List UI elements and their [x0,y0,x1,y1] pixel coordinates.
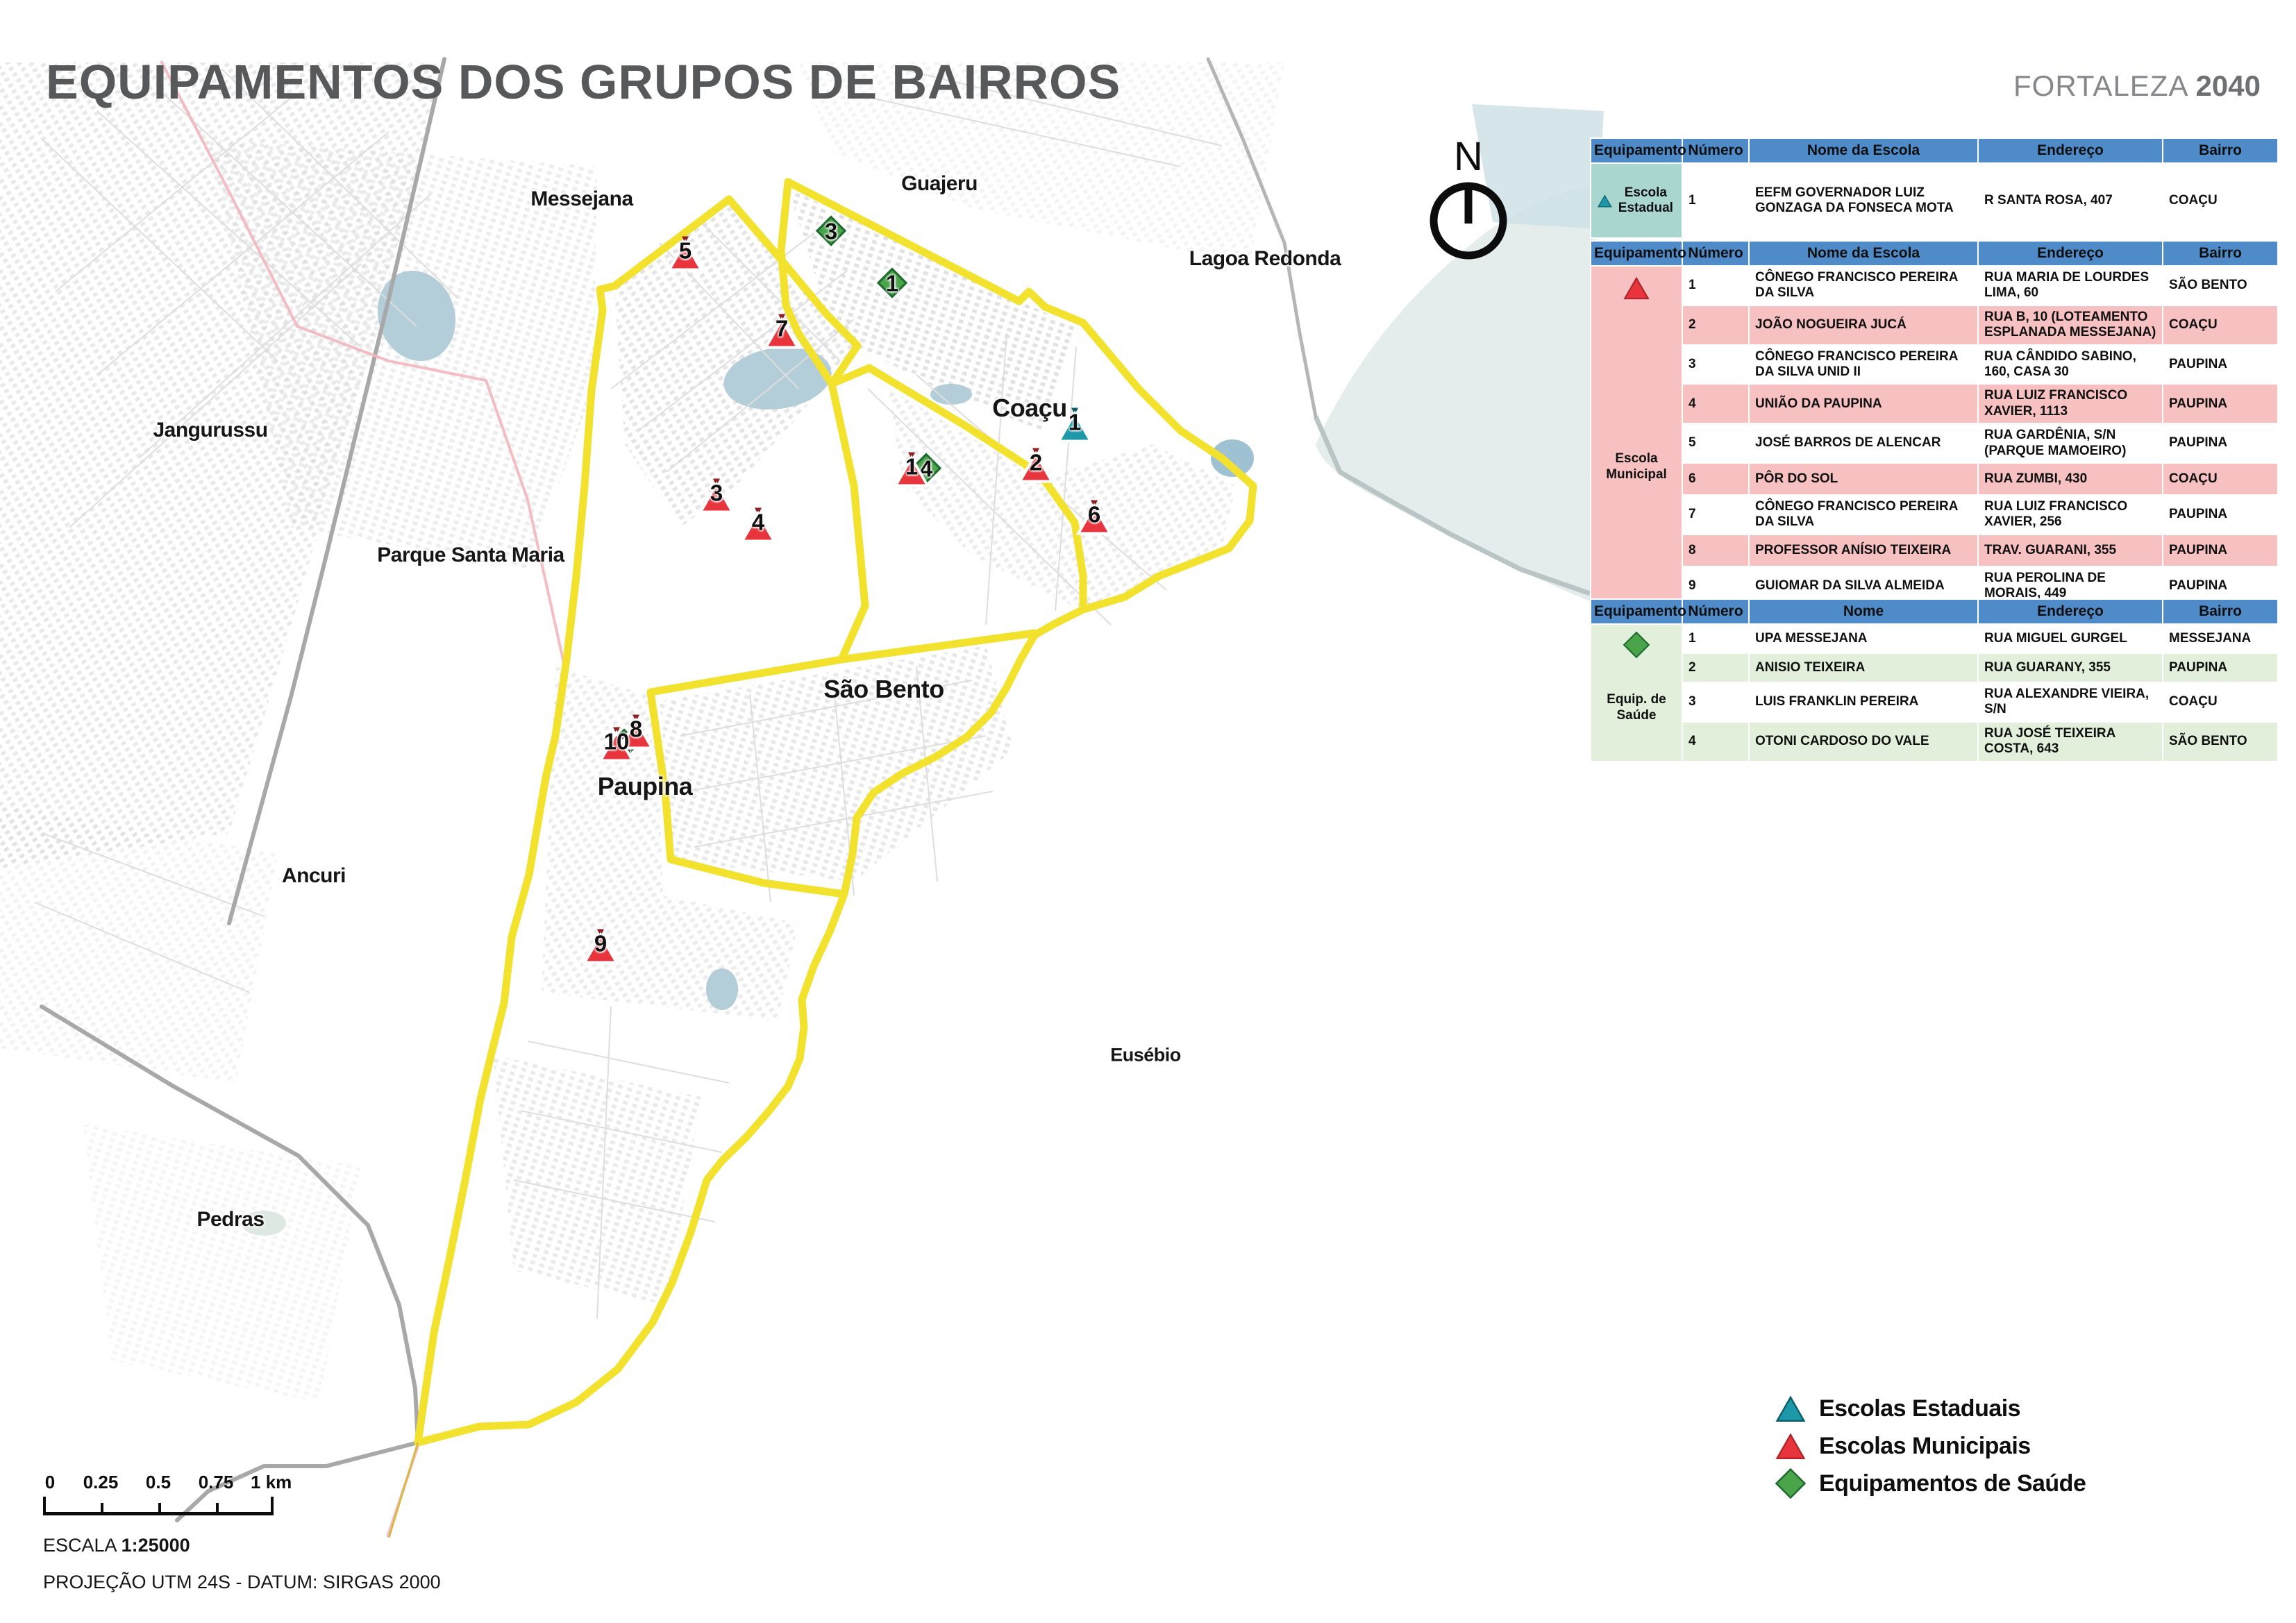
category-cell-saude: Equip. de Saúde [1591,624,1682,762]
saude-diamond-icon [1775,1468,1807,1499]
marker-estadual-1: 1 [1055,408,1094,447]
cell-nome: EEFM GOVERNADOR LUIZ GONZAGA DA FONSECA … [1749,163,1978,238]
table-row: 5 JOSÉ BARROS DE ALENCAR RUA GARDÊNIA, S… [1591,423,2278,463]
scale-tick-labels: 0 0.25 0.5 0.75 1 km [43,1472,274,1494]
saude-diamond-icon [1623,631,1650,659]
table-row: Escola Estadual 1 EEFM GOVERNADOR LUIZ G… [1591,163,2278,238]
cell-nome: UPA MESSEJANA [1749,624,1978,653]
col-equipamento: Equipamento [1591,241,1682,266]
region-label-lagoa-redonda: Lagoa Redonda [1189,247,1341,271]
marker-municipal-9: 9 [581,930,620,968]
region-label-messejana: Messejana [530,187,632,211]
map-poster: EQUIPAMENTOS DOS GRUPOS DE BAIRROS FORTA… [0,0,2296,1623]
legend-item-saude: Equipamentos de Saúde [1775,1465,2086,1502]
marker-municipal-6: 6 [1075,501,1114,539]
cell-endereco: RUA LUIZ FRANCISCO XAVIER, 1113 [1978,384,2163,423]
cell-nome: LUIS FRANKLIN PEREIRA [1749,682,1978,722]
cell-numero: 2 [1682,653,1749,682]
cell-nome: PROFESSOR ANÍSIO TEIXEIRA [1749,535,1978,566]
table-row: 6 PÔR DO SOL RUA ZUMBI, 430 COAÇU [1591,463,2278,495]
col-equipamento: Equipamento [1591,138,1682,163]
cell-numero: 1 [1682,624,1749,653]
col-nome: Nome da Escola [1749,138,1978,163]
col-bairro: Bairro [2163,138,2278,163]
scale-bar-line [43,1497,274,1515]
estadual-triangle-icon [1597,189,1613,212]
cell-bairro: PAUPINA [2163,423,2278,463]
marker-saude-1: 1 [873,264,912,303]
north-label: N [1429,139,1508,175]
legend-item-municipais: Escolas Municipais [1775,1427,2086,1465]
cell-endereco: RUA LUIZ FRANCISCO XAVIER, 256 [1978,495,2163,535]
cell-bairro: COAÇU [2163,682,2278,722]
table-row: Equip. de Saúde 1 UPA MESSEJANA RUA MIGU… [1591,624,2278,653]
municipal-triangle-icon [1775,1431,1807,1461]
cell-bairro: PAUPINA [2163,384,2278,423]
cell-nome: PÔR DO SOL [1749,463,1978,495]
table-header-row: Equipamento Número Nome da Escola Endere… [1591,241,2278,266]
cell-numero: 8 [1682,535,1749,566]
group-label-sao-bento: São Bento [823,675,944,704]
cell-endereco: RUA B, 10 (LOTEAMENTO ESPLANADA MESSEJAN… [1978,305,2163,345]
cell-endereco: RUA JOSÉ TEIXEIRA COSTA, 643 [1978,722,2163,762]
marker-municipal-5: 5 [666,237,705,276]
col-nome: Nome [1749,599,1978,624]
table-row: 2 JOÃO NOGUEIRA JUCÁ RUA B, 10 (LOTEAMEN… [1591,305,2278,345]
table-equip-saude: Equipamento Número Nome Endereço Bairro … [1590,598,2279,762]
cell-numero: 4 [1682,722,1749,762]
cell-numero: 1 [1682,163,1749,238]
col-bairro: Bairro [2163,599,2278,624]
cell-bairro: PAUPINA [2163,495,2278,535]
table-escola-estadual: Equipamento Número Nome da Escola Endere… [1590,137,2279,239]
estadual-triangle-icon [1775,1394,1807,1423]
table-row: 2 ANISIO TEIXEIRA RUA GUARANY, 355 PAUPI… [1591,653,2278,682]
col-bairro: Bairro [2163,241,2278,266]
cell-numero: 2 [1682,305,1749,345]
scale-bar: 0 0.25 0.5 0.75 1 km ESCALA 1:25000 PROJ… [43,1472,441,1593]
category-cell-municipal: Escola Municipal [1591,266,1682,638]
cell-endereco: RUA GUARANY, 355 [1978,653,2163,682]
col-endereco: Endereço [1978,599,2163,624]
projection-text: PROJEÇÃO UTM 24S - DATUM: SIRGAS 2000 [43,1572,441,1593]
region-label-jangurussu: Jangurussu [153,419,267,442]
table-row: 7 CÔNEGO FRANCISCO PEREIRA DA SILVA RUA … [1591,495,2278,535]
legend: Escolas Estaduais Escolas Municipais Equ… [1775,1390,2086,1502]
table-row: 4 OTONI CARDOSO DO VALE RUA JOSÉ TEIXEIR… [1591,722,2278,762]
marker-municipal-1: 1 [892,453,931,491]
table-header-row: Equipamento Número Nome Endereço Bairro [1591,599,2278,624]
table-row: 3 LUIS FRANKLIN PEREIRA RUA ALEXANDRE VI… [1591,682,2278,722]
cell-endereco: RUA MIGUEL GURGEL [1978,624,2163,653]
cell-nome: OTONI CARDOSO DO VALE [1749,722,1978,762]
north-arrow-icon: N [1429,139,1508,263]
cell-endereco: R SANTA ROSA, 407 [1978,163,2163,238]
table-row: 3 CÔNEGO FRANCISCO PEREIRA DA SILVA UNID… [1591,345,2278,385]
cell-bairro: SÃO BENTO [2163,722,2278,762]
brand-logo: FORTALEZA2040 [2013,69,2261,103]
scale-text: ESCALA 1:25000 [43,1535,441,1556]
cell-bairro: PAUPINA [2163,535,2278,566]
cell-nome: ANISIO TEIXEIRA [1749,653,1978,682]
cell-numero: 7 [1682,495,1749,535]
brand-year: 2040 [2196,69,2261,102]
cell-bairro: PAUPINA [2163,345,2278,385]
col-equipamento: Equipamento [1591,599,1682,624]
cell-numero: 5 [1682,423,1749,463]
region-label-guajeru: Guajeru [901,172,978,196]
cell-bairro: COAÇU [2163,305,2278,345]
marker-municipal-3: 3 [697,479,736,518]
cell-endereco: RUA ZUMBI, 430 [1978,463,2163,495]
cell-bairro: COAÇU [2163,163,2278,238]
cell-nome: CÔNEGO FRANCISCO PEREIRA DA SILVA [1749,266,1978,305]
col-numero: Número [1682,138,1749,163]
table-escola-municipal: Equipamento Número Nome da Escola Endere… [1590,240,2279,639]
region-label-parque-santa-maria: Parque Santa Maria [377,544,564,567]
table-row: Escola Municipal 1 CÔNEGO FRANCISCO PERE… [1591,266,2278,305]
cell-bairro: SÃO BENTO [2163,266,2278,305]
col-numero: Número [1682,599,1749,624]
cell-endereco: RUA GARDÊNIA, S/N (PARQUE MAMOEIRO) [1978,423,2163,463]
col-endereco: Endereço [1978,138,2163,163]
cell-nome: CÔNEGO FRANCISCO PEREIRA DA SILVA UNID I… [1749,345,1978,385]
cell-nome: CÔNEGO FRANCISCO PEREIRA DA SILVA [1749,495,1978,535]
cell-endereco: TRAV. GUARANI, 355 [1978,535,2163,566]
region-label-pedras: Pedras [196,1208,264,1231]
marker-municipal-7: 7 [762,314,801,353]
cell-nome: JOÃO NOGUEIRA JUCÁ [1749,305,1978,345]
cell-endereco: RUA CÂNDIDO SABINO, 160, CASA 30 [1978,345,2163,385]
table-header-row: Equipamento Número Nome da Escola Endere… [1591,138,2278,163]
cell-endereco: RUA MARIA DE LOURDES LIMA, 60 [1978,266,2163,305]
category-cell-estadual: Escola Estadual [1591,163,1682,238]
region-label-eusebio: Eusébio [1110,1045,1181,1066]
page-title: EQUIPAMENTOS DOS GRUPOS DE BAIRROS [46,54,1121,110]
cell-numero: 3 [1682,682,1749,722]
col-numero: Número [1682,241,1749,266]
cell-nome: JOSÉ BARROS DE ALENCAR [1749,423,1978,463]
marker-municipal-2: 2 [1016,448,1055,487]
cell-numero: 3 [1682,345,1749,385]
cell-nome: UNIÃO DA PAUPINA [1749,384,1978,423]
group-label-paupina: Paupina [598,772,693,801]
cell-bairro: MESSEJANA [2163,624,2278,653]
cell-numero: 6 [1682,463,1749,495]
legend-item-estaduais: Escolas Estaduais [1775,1390,2086,1427]
marker-municipal-10: 10 [597,728,636,766]
marker-municipal-4: 4 [739,508,778,547]
table-row: 4 UNIÃO DA PAUPINA RUA LUIZ FRANCISCO XA… [1591,384,2278,423]
cell-bairro: COAÇU [2163,463,2278,495]
col-endereco: Endereço [1978,241,2163,266]
marker-saude-3: 3 [812,212,850,251]
col-nome: Nome da Escola [1749,241,1978,266]
region-label-ancuri: Ancuri [282,864,346,888]
cell-endereco: RUA ALEXANDRE VIEIRA, S/N [1978,682,2163,722]
table-row: 8 PROFESSOR ANÍSIO TEIXEIRA TRAV. GUARAN… [1591,535,2278,566]
cell-bairro: PAUPINA [2163,653,2278,682]
brand-name: FORTALEZA [2013,69,2189,102]
cell-numero: 1 [1682,266,1749,305]
cell-numero: 4 [1682,384,1749,423]
municipal-triangle-icon [1622,274,1651,301]
